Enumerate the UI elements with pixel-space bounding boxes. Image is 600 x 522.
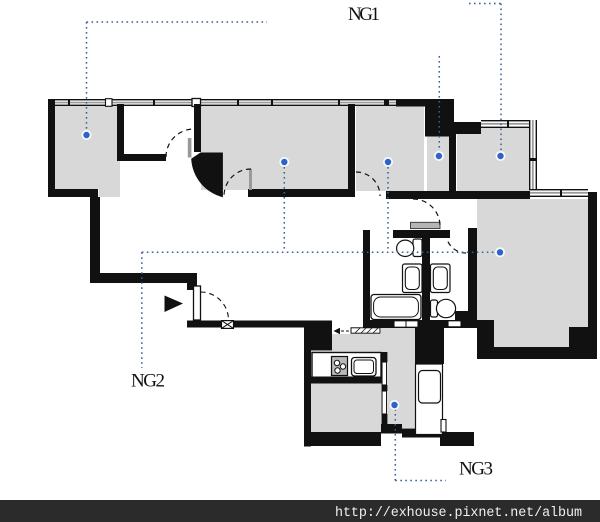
svg-text:http://exhouse.pixnet.net/albu: http://exhouse.pixnet.net/album — [335, 506, 582, 521]
svg-text:NG1: NG1 — [348, 4, 380, 25]
svg-text:NG2: NG2 — [131, 371, 165, 392]
svg-text:NG3: NG3 — [459, 459, 493, 480]
